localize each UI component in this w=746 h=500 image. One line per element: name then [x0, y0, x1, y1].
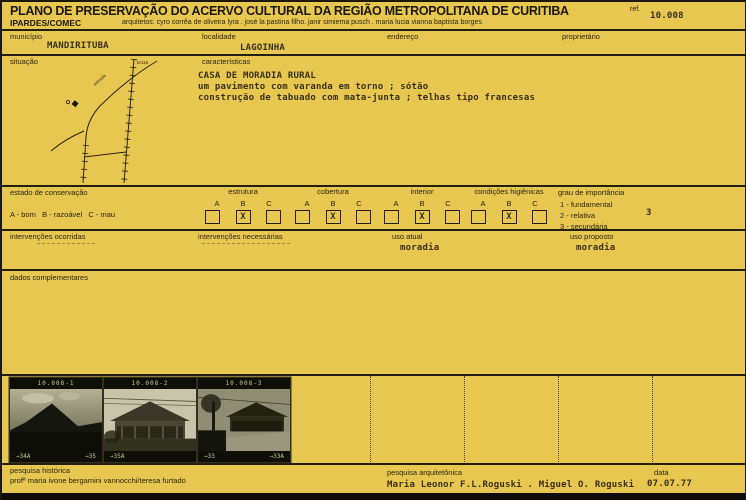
- contact-photo-3: 10.008-3 →33 →33A: [198, 378, 290, 462]
- scan-edge-bar: [2, 493, 746, 500]
- divider: [2, 54, 746, 56]
- ref-value: 10.008: [650, 11, 684, 21]
- col-letter: B: [236, 199, 250, 208]
- caracteristicas-label: características: [202, 57, 250, 66]
- empty-photo-slot-divider: [558, 376, 559, 462]
- photo-2-image: [104, 389, 196, 451]
- col-letter: C: [441, 199, 455, 208]
- check-mark: X: [330, 212, 335, 222]
- checkbox-estrutura-c: [266, 210, 281, 224]
- uso-atual-label: uso atual: [392, 232, 422, 241]
- importancia-label: grau de importância: [558, 188, 624, 197]
- photo-3-frame-right: →33A: [270, 453, 284, 460]
- checkbox-cobertura-a: [295, 210, 310, 224]
- divider: [2, 463, 746, 465]
- pesquisa-historica-label: pesquisa histórica: [10, 466, 70, 475]
- col-letter: B: [326, 199, 340, 208]
- uso-proposto-label: uso proposto: [570, 232, 613, 241]
- contact-photo-2: 10.008-2 →35A: [104, 378, 196, 462]
- org-name: IPARDES/COMEC: [10, 18, 81, 28]
- checkbox-estrutura-a: [205, 210, 220, 224]
- municipio-label: município: [10, 32, 42, 41]
- checkbox-estrutura-b: X: [236, 210, 251, 224]
- proprietario-label: proprietário: [562, 32, 600, 41]
- page-title: PLANO DE PRESERVAÇÃO DO ACERVO CULTURAL …: [10, 4, 569, 18]
- photo-3-id: 10.008-3: [226, 380, 263, 387]
- architects-credit: arquitetos: cyro corrêa de oliveira lyra…: [122, 19, 482, 26]
- empty-photo-slot-divider: [464, 376, 465, 462]
- conservation-group-cobertura: cobertura A B C X: [290, 187, 376, 224]
- pesquisa-arquitetonica-value: Maria Leonor F.L.Roguski . Miguel O. Rog…: [387, 480, 634, 490]
- photo-1-frame-left: →34A: [16, 453, 30, 460]
- uso-proposto-value: moradia: [576, 243, 615, 253]
- dados-complementares-label: dados complementares: [10, 273, 88, 282]
- conservation-group-estrutura: estrutura A B C X: [200, 187, 286, 224]
- photo-1-id: 10.008-1: [38, 380, 75, 387]
- checkbox-cobertura-c: [356, 210, 371, 224]
- house-marker: [72, 100, 79, 107]
- group-label: condições higiênicas: [466, 187, 552, 196]
- importancia-option-1: 1 - fundamental: [560, 199, 612, 210]
- map-diagonal-label: estrada: [92, 73, 107, 87]
- checkbox-interior-a: [384, 210, 399, 224]
- data-value: 07.07.77: [647, 479, 692, 489]
- check-mark: X: [506, 212, 511, 222]
- intervencoes-ocorridas-label: intervenções ocorridas: [10, 232, 85, 241]
- municipio-value: MANDIRITUBA: [47, 41, 109, 51]
- importancia-value: 3: [646, 208, 652, 218]
- checkbox-interior-c: [445, 210, 460, 224]
- col-letter: C: [262, 199, 276, 208]
- data-label: data: [654, 468, 669, 477]
- divider: [2, 29, 746, 31]
- fine-print-line: [202, 243, 290, 244]
- location-sketch-map: br116 estrada: [37, 59, 192, 185]
- situacao-label: situação: [10, 57, 38, 66]
- photo-3-image: [198, 389, 290, 451]
- localidade-label: localidade: [202, 32, 236, 41]
- conservation-group-condicoes-higienicas: condições higiênicas A B C X: [466, 187, 552, 224]
- ref-label: ref.: [630, 6, 640, 13]
- checkbox-interior-b: X: [415, 210, 430, 224]
- col-letter: A: [300, 199, 314, 208]
- checkbox-higiene-a: [471, 210, 486, 224]
- col-letter: B: [415, 199, 429, 208]
- checkbox-higiene-b: X: [502, 210, 517, 224]
- col-letter: C: [352, 199, 366, 208]
- photo-1-frame-right: →35: [85, 453, 96, 460]
- photo-2-id: 10.008-2: [132, 380, 169, 387]
- col-letter: A: [389, 199, 403, 208]
- photo-3-frame-left: →33: [204, 453, 215, 460]
- col-letter: A: [210, 199, 224, 208]
- col-letter: C: [528, 199, 542, 208]
- check-mark: X: [419, 212, 424, 222]
- endereco-label: endereço: [387, 32, 418, 41]
- conservation-group-interior: interior A B C X: [379, 187, 465, 224]
- importancia-option-2: 2 - relativa: [560, 210, 612, 221]
- preservation-form-sheet: PLANO DE PRESERVAÇÃO DO ACERVO CULTURAL …: [0, 0, 746, 500]
- contact-photo-1: 10.008-1 →34A →35: [10, 378, 102, 462]
- photo-2-frame-left: →35A: [110, 453, 124, 460]
- caracteristica-line-3: construção de tabuado com mata-junta ; t…: [198, 93, 535, 104]
- checkbox-higiene-c: [532, 210, 547, 224]
- caracteristica-line-2: um pavimento com varanda em torno ; sótã…: [198, 82, 428, 93]
- fine-print-line: [37, 243, 95, 244]
- map-road-label: br116: [137, 60, 149, 65]
- photo-1-image: [10, 389, 102, 451]
- pesquisa-historica-value: profª maria ivone bergamini vannocchi/te…: [10, 476, 186, 485]
- pesquisa-arquitetonica-label: pesquisa arquitetônica: [387, 468, 462, 477]
- uso-atual-value: moradia: [400, 243, 439, 253]
- check-mark: X: [240, 212, 245, 222]
- col-letter: B: [502, 199, 516, 208]
- conservacao-legend: A - bom B - razoável C - mau: [10, 210, 115, 219]
- localidade-value: LAGOINHA: [240, 43, 285, 53]
- empty-photo-slot-divider: [652, 376, 653, 462]
- group-label: interior: [379, 187, 465, 196]
- empty-photo-slot-divider: [370, 376, 371, 462]
- group-label: estrutura: [200, 187, 286, 196]
- divider: [2, 374, 746, 376]
- checkbox-cobertura-b: X: [326, 210, 341, 224]
- intervencoes-necessarias-label: intervenções necessárias: [198, 232, 283, 241]
- col-letter: A: [476, 199, 490, 208]
- divider: [2, 269, 746, 271]
- group-label: cobertura: [290, 187, 376, 196]
- caracteristica-line-1: CASA DE MORADIA RURAL: [198, 71, 316, 82]
- divider: [2, 229, 746, 231]
- conservacao-label: estado de conservação: [10, 188, 88, 197]
